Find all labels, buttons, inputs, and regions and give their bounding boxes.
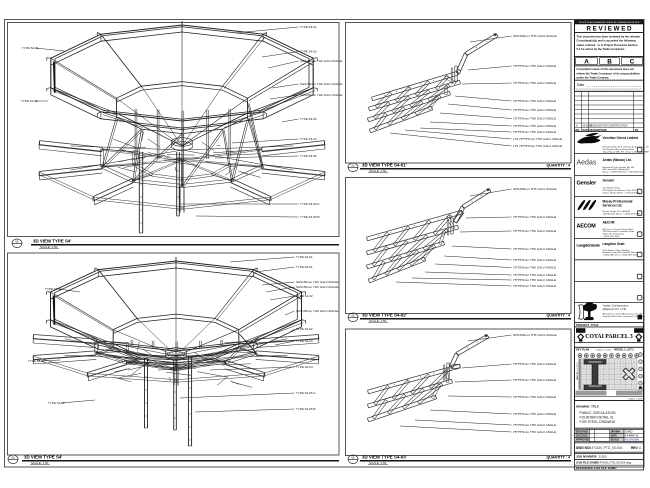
svg-text:SHS150mm THK GALV ANGLE: SHS150mm THK GALV ANGLE (296, 280, 338, 284)
svg-text:LangdonSeah: LangdonSeah (577, 242, 601, 247)
svg-text:TYPE S4-03: TYPE S4-03 (300, 117, 317, 121)
svg-text:L75 75*75*6mm THK GALV ANGLE: L75 75*75*6mm THK GALV ANGLE (513, 137, 562, 141)
svg-text:5-FOUN_PTD_05-004.dwg: 5-FOUN_PTD_05-004.dwg (598, 461, 632, 465)
svg-text:PARCEL 1, LOT 2: PARCEL 1, LOT 2 (614, 349, 634, 352)
svg-text:75*75*6mm THK GALV ANGLE: 75*75*6mm THK GALV ANGLE (513, 266, 556, 270)
svg-text:13 Andar A-B, Macau t: (853): 13 Andar A-B, Macau t: (853) 2878 3396 (603, 213, 642, 216)
svg-text:REV:: REV: (631, 446, 638, 450)
svg-text:REISSUED FOR CONSTRUCTION: REISSUED FOR CONSTRUCTION (590, 124, 628, 127)
svg-text:Aedas: Aedas (577, 159, 597, 166)
svg-text:SHS150mm THK GALV ANGLE: SHS150mm THK GALV ANGLE (300, 93, 342, 97)
svg-text:COTAI PARCEL 3: COTAI PARCEL 3 (585, 334, 633, 340)
svg-text:SHS150mm THK GALV ANGLE: SHS150mm THK GALV ANGLE (513, 34, 557, 38)
svg-text:This document has been reviewe: This document has been reviewed by the r… (577, 34, 641, 38)
svg-text:Venetian Orient Limited: Venetian Orient Limited (603, 136, 639, 140)
svg-text:31520: 31520 (599, 455, 608, 459)
svg-text:TYPE S4-01: TYPE S4-01 (296, 255, 313, 259)
svg-text:FOUNTAIN DETAIL 01: FOUNTAIN DETAIL 01 (580, 416, 614, 420)
svg-text:TYPE S4-03: TYPE S4-03 (296, 339, 313, 343)
svg-text:Langdon Seah: Langdon Seah (603, 242, 625, 246)
svg-text:05: 05 (352, 314, 355, 318)
svg-text:SCALE 1:1000: SCALE 1:1000 (596, 349, 612, 352)
svg-text:-: - (597, 439, 598, 442)
svg-text:PUBLIC CIRCULATION: PUBLIC CIRCULATION (580, 411, 616, 415)
svg-text:REFERENCE CAD FILE NAME:: REFERENCE CAD FILE NAME: (576, 466, 617, 470)
svg-text:QUANTITY : 4: QUANTITY : 4 (547, 164, 571, 168)
svg-text:75*75*6mm THK GALV ANGLE: 75*75*6mm THK GALV ANGLE (513, 215, 556, 219)
svg-text:3D VIEW TYPE S4': 3D VIEW TYPE S4' (24, 455, 62, 460)
svg-text:3D VIEW TYPE S4-03': 3D VIEW TYPE S4-03' (362, 455, 407, 460)
svg-text:JOB NUMBER:: JOB NUMBER: (576, 455, 597, 459)
svg-text:PARCEL 1, LOT 1: PARCEL 1, LOT 1 (576, 362, 579, 380)
svg-text:75*75*6mm THK GALV ANGLE: 75*75*6mm THK GALV ANGLE (513, 117, 556, 121)
svg-text:75*75*6mm THK GALV ANGLE: 75*75*6mm THK GALV ANGLE (513, 258, 556, 262)
svg-text:APPROVED: APPROVED (576, 439, 590, 442)
svg-text:AECOM: AECOM (603, 221, 615, 225)
svg-text:75*75*6mm THK GALV ANGLE: 75*75*6mm THK GALV ANGLE (513, 130, 556, 134)
svg-text:75*75*6mm THK GALV ANGLE: 75*75*6mm THK GALV ANGLE (513, 378, 556, 382)
svg-text:5-FOUN_PTD_05-004: 5-FOUN_PTD_05-004 (590, 446, 623, 450)
svg-text:Gensler: Gensler (603, 179, 616, 183)
svg-text:TYPE S4-02: TYPE S4-02 (300, 50, 317, 54)
svg-text:TYPE S4-02: TYPE S4-02 (296, 327, 313, 331)
svg-text:TYPE S4-02: TYPE S4-02 (296, 294, 313, 298)
svg-text:AECOM: AECOM (577, 223, 597, 229)
svg-text:5.4 for action by the Trade Co: 5.4 for action by the Trade Contractor. (577, 47, 626, 51)
svg-text:relieve the Trade Contractor o: relieve the Trade Contractor of its resp… (577, 71, 641, 75)
svg-text:SHS150mm THK GALV ANGLE: SHS150mm THK GALV ANGLE (300, 82, 342, 86)
svg-text:C: C (630, 59, 635, 66)
svg-text:t: (853) 2833 1710 f: (853) 2: t: (853) 2833 1710 f: (853) 2833 1532 (603, 254, 639, 257)
svg-text:AS SHOWN: AS SHOWN (625, 438, 639, 442)
svg-text:TYPE S4-01: TYPE S4-01 (300, 25, 317, 29)
svg-text:PROJECT TITLE: PROJECT TITLE (576, 323, 599, 327)
svg-text:R E V I E W E D: R E V I E W E D (586, 26, 632, 33)
svg-text:status referred to in Projec: status referred to in Project Procedure … (577, 43, 638, 47)
svg-text:75*75*6mm THK GALV ANGLE: 75*75*6mm THK GALV ANGLE (513, 99, 556, 103)
svg-text:QUANTITY : 4: QUANTITY : 4 (547, 456, 571, 460)
svg-text:Consultant review of this docu: Consultant review of this document does … (577, 67, 635, 71)
svg-text:Aedas (Macau) Ltd.: Aedas (Macau) Ltd. (603, 158, 632, 162)
svg-text:CHECKED: CHECKED (576, 434, 588, 437)
svg-text:TYPE S4-05: TYPE S4-05 (300, 154, 317, 158)
svg-text:VENETIAN: VENETIAN (583, 142, 594, 145)
svg-text:05: 05 (352, 456, 355, 460)
svg-text:75*75*6mm THK GALV ANGLE: 75*75*6mm THK GALV ANGLE (513, 273, 556, 277)
svg-text:A: A (639, 446, 642, 450)
svg-text:L75 75*75*6mm THK GALV ANGLE: L75 75*75*6mm THK GALV ANGLE (513, 144, 562, 148)
svg-text:75*75*6mm THK GALV ANGLE: 75*75*6mm THK GALV ANGLE (513, 229, 556, 233)
svg-text:TYPE S4-01: TYPE S4-01 (296, 265, 313, 269)
svg-text:under the Trade Contract.: under the Trade Contract. (577, 76, 610, 80)
svg-text:05: 05 (16, 240, 19, 244)
svg-text:SHS150mm THK GALV ANGLE: SHS150mm THK GALV ANGLE (300, 59, 342, 63)
svg-text:(Macau) CO. LTD.: (Macau) CO. LTD. (603, 307, 627, 311)
svg-text:75*75*6mm THK GALV ANGLE: 75*75*6mm THK GALV ANGLE (513, 284, 556, 288)
svg-text:A: A (584, 59, 589, 66)
svg-text:75*75*6mm THK GALV ANGLE: 75*75*6mm THK GALV ANGLE (513, 108, 556, 112)
svg-text:TYPE S4-04: TYPE S4-04 (296, 365, 313, 369)
svg-text:14-MAR-16: 14-MAR-16 (625, 433, 639, 437)
svg-text:3D VIEW TYPE S4-01': 3D VIEW TYPE S4-01' (362, 163, 407, 168)
svg-text:SHS150mm THK GALV ANGLE: SHS150mm THK GALV ANGLE (296, 309, 338, 313)
svg-text:75*75*6mm THK GALV ANGLE: 75*75*6mm THK GALV ANGLE (513, 278, 556, 282)
svg-text:SHS150mm THK GALV ANGLE: SHS150mm THK GALV ANGLE (296, 285, 338, 289)
svg-text:Gensler: Gensler (577, 180, 597, 186)
svg-text:75*75*6mm THK GALV ANGLE: 75*75*6mm THK GALV ANGLE (513, 395, 556, 399)
svg-text:75*75*6mm THK GALV ANGLE: 75*75*6mm THK GALV ANGLE (513, 64, 556, 68)
svg-text:-: - (597, 434, 598, 437)
svg-text:A: A (576, 124, 578, 127)
svg-text:75*75*6mm THK GALV ANGLE: 75*75*6mm THK GALV ANGLE (513, 362, 556, 366)
svg-text:SHS150mm THK GALV ANGLE: SHS150mm THK GALV ANGLE (513, 187, 557, 191)
svg-text:DWG NO:: DWG NO: (576, 446, 591, 450)
svg-text:3D VIEW TYPE S4': 3D VIEW TYPE S4' (33, 239, 71, 244)
svg-text:75*75*6mm THK GALV ANGLE: 75*75*6mm THK GALV ANGLE (513, 412, 556, 416)
svg-text:TYPE S4-05 B: TYPE S4-05 B (300, 215, 320, 219)
svg-text:DRAWN: DRAWN (611, 430, 620, 433)
svg-text:Taipa, Macau SAR, P.R. China: Taipa, Macau SAR, P.R. China t: (853) 28… (603, 150, 650, 153)
svg-text:75*75*6mm THK GALV ANGLE: 75*75*6mm THK GALV ANGLE (513, 423, 556, 427)
svg-text:05: 05 (352, 164, 355, 168)
svg-text:CHAD: CHAD (625, 429, 632, 433)
svg-text:DESIGNED: DESIGNED (576, 430, 589, 433)
svg-text:Tampa, Florida 33602 t: 1 813: Tampa, Florida 33602 t: 1 813 204 9000 (603, 191, 641, 194)
svg-text:TYPE S4-05 A: TYPE S4-05 A (296, 391, 315, 395)
svg-text:Date :: Date : (577, 83, 586, 87)
svg-text:CAD FILE NAME:: CAD FILE NAME: (576, 461, 599, 465)
svg-text:SCALE: SCALE (611, 439, 620, 442)
svg-text:TYPE S4-04: TYPE S4-04 (300, 137, 317, 141)
svg-text:DATE: DATE (611, 434, 618, 437)
svg-text:Consultant(s)(s) and is accord: Consultant(s)(s) and is accorded the fol… (577, 39, 636, 43)
svg-text:TYPE S4-05 A: TYPE S4-05 A (300, 202, 319, 206)
svg-text:Services Ltd.: Services Ltd. (603, 203, 623, 207)
svg-text:t: (852) 3922 9000: t: (852) 3922 9000 (603, 235, 621, 238)
svg-text:B: B (607, 59, 612, 66)
svg-text:05: 05 (12, 456, 15, 460)
svg-text:FOR STEEL DRAWING: FOR STEEL DRAWING (580, 420, 616, 424)
svg-text:75*75*6mm THK GALV ANGLE: 75*75*6mm THK GALV ANGLE (513, 124, 556, 128)
svg-text:KEY PLAN: KEY PLAN (576, 348, 589, 352)
svg-text:DRAWING TITLE: DRAWING TITLE (576, 404, 599, 408)
svg-text:SHS150mm THK GALV ANGLE: SHS150mm THK GALV ANGLE (513, 333, 557, 337)
svg-text:Macau t: (853) 2833 1113 f:: Macau t: (853) 2833 1113 f: (853) 2833 1… (603, 171, 646, 174)
svg-text:75*75*6mm THK GALV ANGLE: 75*75*6mm THK GALV ANGLE (513, 247, 556, 251)
svg-text:TYPE S4-05 B: TYPE S4-05 B (296, 407, 316, 411)
svg-text:75*75*6mm THK GALV ANGLE: 75*75*6mm THK GALV ANGLE (513, 430, 556, 434)
svg-text:75*75*6mm THK GALV ANGLE: 75*75*6mm THK GALV ANGLE (513, 81, 556, 85)
svg-text:QUANTITY : 4: QUANTITY : 4 (547, 314, 571, 318)
svg-text:3D VIEW TYPE S4-02': 3D VIEW TYPE S4-02' (362, 313, 407, 318)
